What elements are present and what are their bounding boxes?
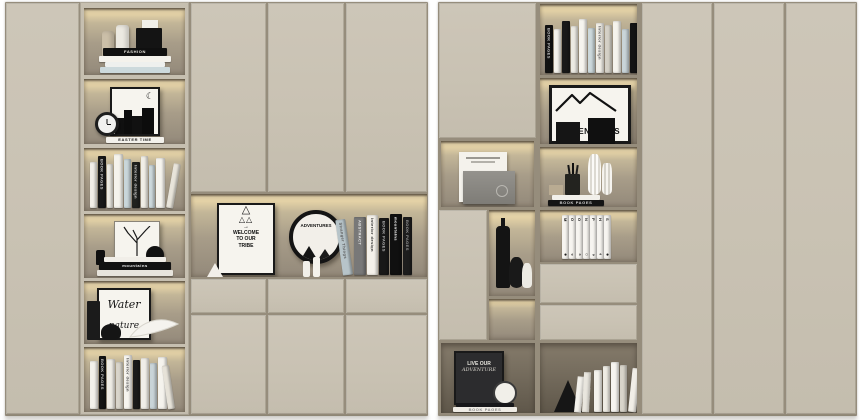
gray-box bbox=[463, 171, 515, 204]
shelf-niche: mountains bbox=[84, 214, 185, 278]
book-spine-title: Interior design bbox=[126, 358, 131, 392]
art-text: ADVENTURE bbox=[456, 367, 502, 373]
books-row: BOOK PAGESInterior design bbox=[90, 355, 175, 409]
cabinet-door bbox=[268, 3, 344, 192]
book-stack: BOOK PAGES bbox=[545, 195, 607, 206]
magazine-text-line bbox=[471, 161, 495, 163]
black-speaker bbox=[87, 301, 100, 340]
book-spine: P◒ bbox=[590, 215, 597, 259]
book-spine: Interior design bbox=[132, 162, 140, 208]
books-row: Stranger ThingsABSTRACTInterior designBO… bbox=[343, 214, 412, 275]
cabinet-door bbox=[439, 3, 536, 138]
teepee-icon: △△ bbox=[219, 216, 273, 224]
book-spine-title: M bbox=[563, 218, 568, 222]
cabinet-door bbox=[191, 3, 266, 192]
book-spine: BOOK PAGES bbox=[98, 156, 106, 208]
building-silhouette bbox=[142, 108, 154, 134]
cabinet-door bbox=[6, 3, 79, 414]
book-spine bbox=[90, 162, 97, 208]
furniture-render-scene: FASHION ☾ EASTER TIME BOOK PAGESInterior… bbox=[0, 0, 860, 420]
book-spine bbox=[107, 164, 113, 208]
cabinet-door bbox=[439, 210, 487, 340]
black-book bbox=[588, 118, 615, 144]
fluted-white-vase bbox=[602, 163, 612, 195]
book-spine: S● bbox=[604, 215, 611, 259]
white-vase bbox=[522, 263, 532, 288]
drawer-front bbox=[268, 279, 344, 313]
book-spine bbox=[166, 163, 181, 209]
book-spine: BOOK PAGES bbox=[403, 217, 412, 275]
book-stack: mountains bbox=[92, 257, 178, 276]
moon-phase-icon: ◒ bbox=[592, 253, 595, 258]
teepee-poster: △ △△ → WELCOME TO OUR TRIBE bbox=[217, 203, 275, 275]
bottles-niche bbox=[489, 210, 535, 296]
book-spine-title: O bbox=[577, 218, 582, 222]
alarm-clock bbox=[95, 112, 119, 136]
book-spine bbox=[141, 358, 149, 409]
building-silhouette bbox=[132, 116, 142, 134]
book-spine-title: BOOK PAGES bbox=[547, 28, 552, 59]
books-row: BOOK PAGESInterior design bbox=[545, 19, 637, 73]
moon-phase-icon: ◓ bbox=[599, 253, 602, 258]
book-spine-title: BOOK PAGES bbox=[100, 359, 105, 390]
book-spine-title: P bbox=[591, 218, 596, 221]
book-spine bbox=[149, 165, 155, 208]
book-spine: Interior design bbox=[596, 23, 604, 73]
book-spine bbox=[562, 21, 570, 73]
plate-label: ADVENTURES bbox=[293, 223, 339, 229]
round-badge bbox=[493, 381, 517, 405]
mountain-lineart-icon bbox=[554, 91, 620, 113]
book-spine bbox=[613, 21, 621, 73]
cabinet-door bbox=[346, 315, 427, 414]
book-spine bbox=[588, 28, 595, 73]
shelf-niche: FASHION bbox=[84, 8, 185, 75]
magazine-niche bbox=[441, 141, 534, 207]
flat-book bbox=[97, 270, 173, 276]
book-spine bbox=[133, 360, 140, 409]
display-niche: △ △△ → WELCOME TO OUR TRIBE ADVENTURES S… bbox=[191, 194, 427, 277]
flat-book: FASHION bbox=[103, 48, 167, 56]
drawer-front bbox=[540, 264, 637, 303]
book-spine bbox=[90, 361, 98, 409]
book-spine bbox=[603, 366, 610, 412]
black-stone bbox=[101, 324, 121, 340]
book-stack: EASTER TIME bbox=[94, 137, 176, 143]
book-spine bbox=[571, 26, 578, 73]
book-spine: mountains bbox=[390, 214, 402, 275]
books-row bbox=[594, 362, 636, 412]
book-spine bbox=[579, 19, 587, 73]
left-cabinet-unit: FASHION ☾ EASTER TIME BOOK PAGESInterior… bbox=[5, 2, 428, 416]
flat-book: mountains bbox=[99, 262, 171, 270]
drawer-front bbox=[346, 279, 427, 313]
empty-niche bbox=[489, 299, 535, 340]
shelf-niche: Water nature bbox=[84, 281, 185, 344]
shelf-niche: BOOK PAGESInterior design bbox=[84, 347, 185, 412]
book-spine: ABSTRACT bbox=[354, 217, 366, 275]
small-box bbox=[549, 185, 563, 195]
book-spine: Interior design bbox=[367, 215, 378, 275]
book-spine-title: H bbox=[598, 218, 603, 221]
book-spine bbox=[622, 29, 629, 73]
drawer-front bbox=[191, 279, 266, 313]
book-spine-title: Stranger Things bbox=[338, 222, 348, 259]
moon-phase-icon: ○ bbox=[585, 253, 588, 258]
moon-phase-icon: ◐ bbox=[571, 253, 574, 258]
logo-emblem-icon bbox=[496, 185, 508, 197]
book-spine-title: mountains bbox=[394, 217, 399, 241]
cabinet-door bbox=[191, 315, 266, 414]
bottom-books-niche bbox=[540, 343, 637, 413]
poster-text: TRIBE bbox=[219, 243, 273, 249]
book-spine: O◐ bbox=[569, 215, 576, 259]
crescent-moon-icon: ☾ bbox=[146, 91, 154, 102]
moon-phase-icon: ● bbox=[564, 253, 567, 258]
triangle-sculpture bbox=[207, 263, 223, 277]
book-spine: BOOK PAGES bbox=[99, 356, 106, 409]
open-shelf-column: FASHION ☾ EASTER TIME BOOK PAGESInterior… bbox=[80, 2, 189, 415]
drawer-front bbox=[540, 305, 637, 340]
book-stack: BOOK PAGES bbox=[449, 403, 521, 412]
shelf-niche: BOOK PAGESInterior design bbox=[84, 148, 185, 211]
book-spine-title: Interior design bbox=[370, 218, 375, 252]
right-cabinet-unit: LIVE OUR ADVENTURE BOOK PAGES BOOK PAGES… bbox=[438, 2, 857, 416]
book-spine-title: BOOK PAGES bbox=[382, 221, 387, 252]
book-spine bbox=[594, 370, 602, 412]
book-spine: BOOK PAGES bbox=[379, 218, 389, 275]
book-spine bbox=[605, 25, 612, 73]
poster-niche: ADVENTURES bbox=[540, 78, 637, 144]
moon-phases-niche: M●O◐O◑N○P◒H◓S● bbox=[540, 210, 637, 262]
bottle-neck bbox=[501, 218, 505, 228]
book-spine: M● bbox=[562, 215, 569, 259]
pencil-cup bbox=[565, 174, 580, 195]
book-spine bbox=[150, 363, 157, 409]
moon-phase-icon: ◑ bbox=[578, 253, 581, 258]
adventures-plate: ADVENTURES bbox=[289, 210, 343, 264]
book-spine: N○ bbox=[583, 215, 590, 259]
book-spine-title: N bbox=[584, 218, 589, 221]
book-spine bbox=[141, 156, 148, 208]
cabinet-door bbox=[268, 315, 344, 414]
cabinet-door bbox=[714, 3, 784, 414]
horn-sculpture bbox=[128, 315, 180, 339]
fluted-white-vase bbox=[588, 154, 601, 195]
book-spine: BOOK PAGES bbox=[545, 25, 553, 73]
book-spine bbox=[114, 154, 123, 208]
building-silhouette bbox=[124, 110, 132, 134]
book-spine-title: ABSTRACT bbox=[358, 220, 363, 245]
books-row: BOOK PAGESInterior design bbox=[90, 154, 173, 208]
book-spine bbox=[107, 359, 115, 409]
black-book bbox=[556, 122, 580, 144]
book-spine: H◓ bbox=[597, 215, 604, 259]
book-spine-title: Interior design bbox=[134, 165, 139, 199]
book-spine bbox=[554, 29, 561, 73]
cabinet-door bbox=[346, 3, 427, 192]
book-spine-title: O bbox=[570, 218, 575, 222]
book-spine-title: BOOK PAGES bbox=[100, 159, 105, 190]
shelf-niche: ☾ EASTER TIME bbox=[84, 79, 185, 144]
book-spine bbox=[620, 365, 627, 412]
magazine-text-line bbox=[466, 157, 500, 159]
book-stack: FASHION bbox=[94, 48, 176, 73]
flat-book: BOOK PAGES bbox=[453, 407, 517, 412]
book-spine bbox=[582, 372, 591, 412]
vases-niche: BOOK PAGES bbox=[540, 147, 637, 207]
flat-book bbox=[100, 67, 170, 73]
books-niche: BOOK PAGESInterior design bbox=[540, 4, 637, 75]
book-spine bbox=[156, 158, 165, 208]
art-text: Water bbox=[99, 298, 149, 312]
book-spine bbox=[611, 362, 619, 412]
book-spine-title: S bbox=[605, 218, 610, 221]
book-spine: Interior design bbox=[124, 355, 132, 409]
book-spine: O◑ bbox=[576, 215, 583, 259]
black-bottle bbox=[496, 226, 510, 288]
book-spine bbox=[628, 368, 637, 413]
book-spine-title: BOOK PAGES bbox=[405, 220, 410, 251]
bottom-display-niche: LIVE OUR ADVENTURE BOOK PAGES bbox=[441, 343, 535, 413]
flat-book: EASTER TIME bbox=[106, 137, 164, 143]
book-spine-title: Interior design bbox=[598, 26, 603, 60]
floor-shadow bbox=[438, 416, 857, 420]
moon-phase-icon: ● bbox=[606, 253, 609, 258]
cabinet-door bbox=[786, 3, 856, 414]
book-spine bbox=[116, 362, 123, 409]
candle bbox=[313, 257, 320, 277]
moon-phases-books: M●O◐O◑N○P◒H◓S● bbox=[562, 215, 611, 259]
cabinet-door bbox=[642, 3, 712, 414]
floor-shadow bbox=[5, 416, 428, 420]
candle bbox=[303, 261, 310, 277]
book-spine bbox=[630, 23, 637, 73]
book-spine bbox=[124, 159, 131, 208]
flat-book: BOOK PAGES bbox=[548, 200, 604, 206]
